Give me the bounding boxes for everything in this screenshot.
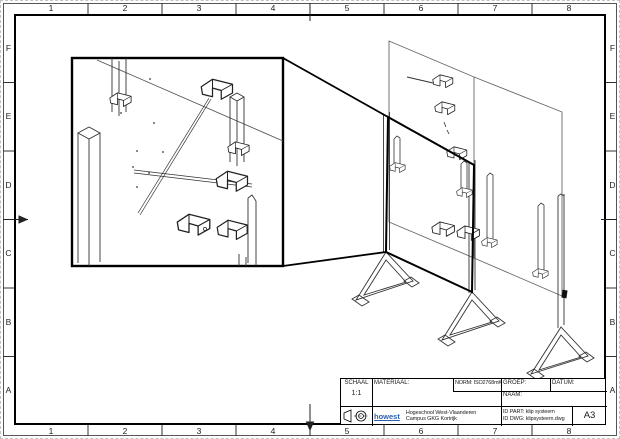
detail-connector-lines	[283, 58, 388, 266]
materiaal-cell: MATERIAAL:	[372, 379, 453, 406]
detail-view-border	[72, 58, 283, 266]
rod	[407, 77, 433, 83]
sheet-format: A3	[572, 406, 607, 425]
center-arrow-bottom-icon	[307, 422, 314, 430]
id-cell: ID PART: klip systeem ID DWG: klipsystee…	[501, 406, 572, 426]
id-dwg: ID DWG: klipsysteem.dwg	[503, 416, 570, 423]
post	[538, 203, 544, 277]
schaal-value: 1:1	[341, 390, 372, 397]
clip-bracket	[433, 75, 453, 88]
naam-cell: NAAM:	[501, 391, 607, 406]
schaal-cell: SCHAAL 1:1	[341, 379, 372, 406]
first-angle-projection-icon	[341, 406, 372, 426]
detail-callout	[283, 58, 474, 292]
detail-view	[72, 58, 283, 266]
norm-cell: NORM: ISO2768mK	[453, 379, 501, 391]
clip-bracket	[482, 238, 498, 248]
stand-3	[527, 194, 594, 380]
id-part: ID PART: klip systeem	[503, 409, 570, 416]
stand-2	[438, 160, 505, 346]
howest-logo: howest	[374, 412, 400, 421]
format-cell: A3	[572, 406, 607, 426]
schaal-label: SCHAAL	[341, 379, 372, 387]
title-block: SCHAAL 1:1 MATERIAAL: NORM: ISO2768mK GR…	[340, 378, 606, 425]
projection-symbol-cell	[341, 406, 372, 426]
clip-bracket	[390, 163, 406, 173]
datum-cell: DATUM:	[550, 379, 607, 391]
post	[487, 173, 493, 246]
groep-label: GROEP:	[501, 379, 550, 387]
clip-bracket	[435, 102, 455, 115]
clip-bracket	[432, 222, 455, 236]
center-arrow-left-icon	[19, 216, 27, 223]
organization-line2: Campus GKG Kortrijk	[406, 416, 476, 423]
materiaal-label: MATERIAAL:	[372, 379, 453, 387]
norm-label: NORM: ISO2768mK	[453, 379, 501, 387]
organization-text: Hogeschool West-Vlaanderen Campus GKG Ko…	[406, 410, 476, 423]
hidden-dashes	[444, 122, 449, 134]
clip-bracket	[457, 226, 480, 240]
drawing-linework	[0, 0, 620, 439]
datum-label: DATUM:	[550, 379, 607, 387]
organization-cell: howest Hogeschool West-Vlaanderen Campus…	[372, 406, 501, 426]
drawing-sheet: 1 2 3 4 5 6 7 8 1 2 3 4 5 6 7 8 F E D C …	[0, 0, 620, 439]
clip-bracket	[457, 188, 473, 198]
clip-bracket	[533, 269, 549, 279]
naam-label: NAAM:	[501, 391, 607, 399]
stand-1	[352, 112, 419, 306]
clip-bracket	[447, 147, 467, 160]
groep-cell: GROEP:	[501, 379, 550, 391]
